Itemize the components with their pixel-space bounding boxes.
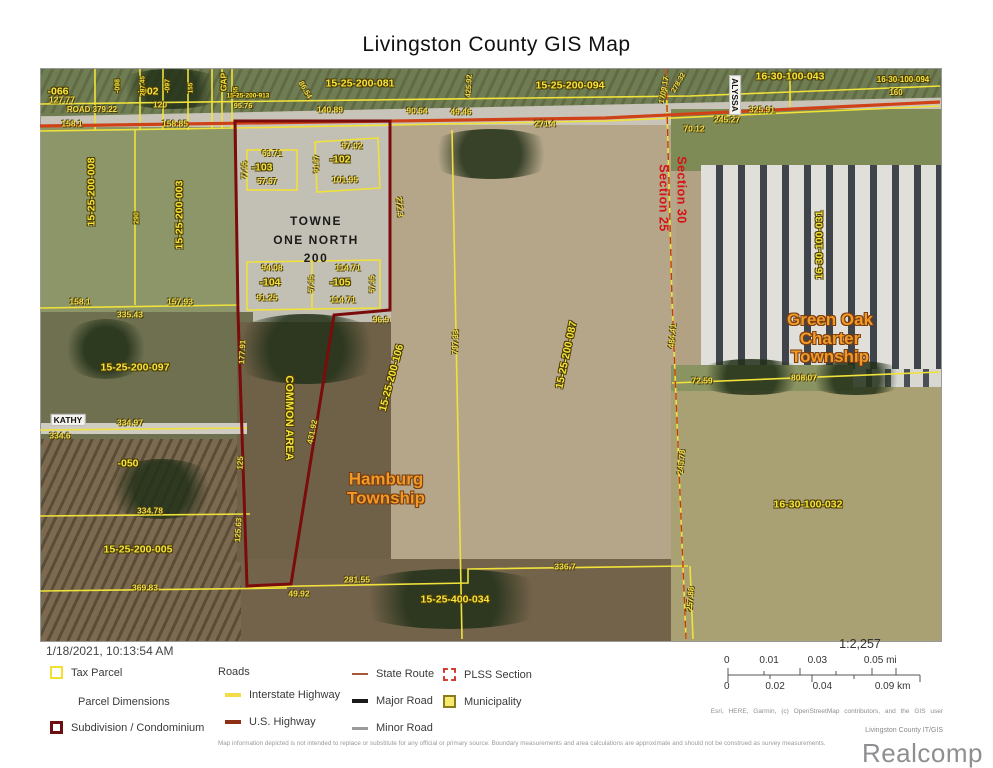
aerial-right-green xyxy=(671,109,941,171)
kathy-road-strip xyxy=(41,423,247,434)
mi-tick-3: 0.05 mi xyxy=(864,655,897,666)
storage-buildings xyxy=(701,165,941,377)
legend-us-highway-label: U.S. Highway xyxy=(249,716,316,728)
legend-us-highway: U.S. Highway xyxy=(225,716,316,728)
legend-subdivision-label: Subdivision / Condominium xyxy=(71,722,204,734)
gis-map-page: Livingston County GIS Map xyxy=(0,0,993,768)
interstate-line-icon xyxy=(225,693,241,697)
realcomp-logo: Realcomp xyxy=(862,738,983,768)
agency-credit: Livingston County IT/GIS xyxy=(865,727,943,734)
page-title: Livingston County GIS Map xyxy=(0,33,993,57)
legend-plss: PLSS Section xyxy=(443,668,532,681)
map-attribution: Esri, HERE, Garmin, (c) OpenStreetMap co… xyxy=(711,708,943,715)
aerial-parking-lot xyxy=(237,127,391,322)
km-tick-2: 0.04 xyxy=(813,681,832,692)
scale-km-labels: 0 0.02 0.04 0.09 km xyxy=(724,681,910,692)
km-tick-0: 0 xyxy=(724,681,730,692)
subdivision-swatch-icon xyxy=(50,721,63,734)
legend-major-road-label: Major Road xyxy=(376,695,433,707)
mi-tick-2: 0.03 xyxy=(808,655,827,666)
major-road-line-icon xyxy=(352,699,368,703)
legend-municipality: Municipality xyxy=(443,695,521,708)
state-route-line-icon xyxy=(352,673,368,675)
legend-tax-parcel-label: Tax Parcel xyxy=(71,667,122,679)
mi-tick-1: 0.01 xyxy=(759,655,778,666)
legend-minor-road: Minor Road xyxy=(352,722,433,734)
aerial-left-lawn xyxy=(41,127,237,312)
aerial-right-field xyxy=(671,387,941,641)
km-tick-3: 0.09 km xyxy=(875,681,911,692)
scale-ratio: 1:2,257 xyxy=(790,637,930,651)
municipality-swatch-icon xyxy=(443,695,456,708)
legend-state-route-label: State Route xyxy=(376,668,434,680)
legend-subdivision: Subdivision / Condominium xyxy=(50,721,204,734)
disclaimer-text: Map information depicted is not intended… xyxy=(218,740,958,747)
legend-state-route: State Route xyxy=(352,668,434,680)
legend-major-road: Major Road xyxy=(352,695,433,707)
legend-tax-parcel: Tax Parcel xyxy=(50,666,122,679)
legend-parcel-dimensions-label: Parcel Dimensions xyxy=(78,696,170,708)
scale-mi-labels: 0 0.01 0.03 0.05 mi xyxy=(724,655,897,666)
legend-plss-label: PLSS Section xyxy=(464,669,532,681)
minor-road-line-icon xyxy=(352,727,368,730)
us-highway-line-icon xyxy=(225,720,241,724)
legend-interstate-label: Interstate Highway xyxy=(249,689,340,701)
legend-minor-road-label: Minor Road xyxy=(376,722,433,734)
legend-roads-header: Roads xyxy=(218,666,250,678)
mi-tick-0: 0 xyxy=(724,655,730,666)
legend-municipality-label: Municipality xyxy=(464,696,521,708)
tax-parcel-swatch-icon xyxy=(50,666,63,679)
plss-swatch-icon xyxy=(443,668,456,681)
map-area[interactable] xyxy=(40,68,942,642)
aerial-center-field xyxy=(391,125,676,630)
legend-parcel-dimensions: Parcel Dimensions xyxy=(78,696,170,708)
legend-interstate: Interstate Highway xyxy=(225,689,340,701)
timestamp: 1/18/2021, 10:13:54 AM xyxy=(46,644,173,658)
km-tick-1: 0.02 xyxy=(765,681,784,692)
scale-bar xyxy=(724,668,934,682)
